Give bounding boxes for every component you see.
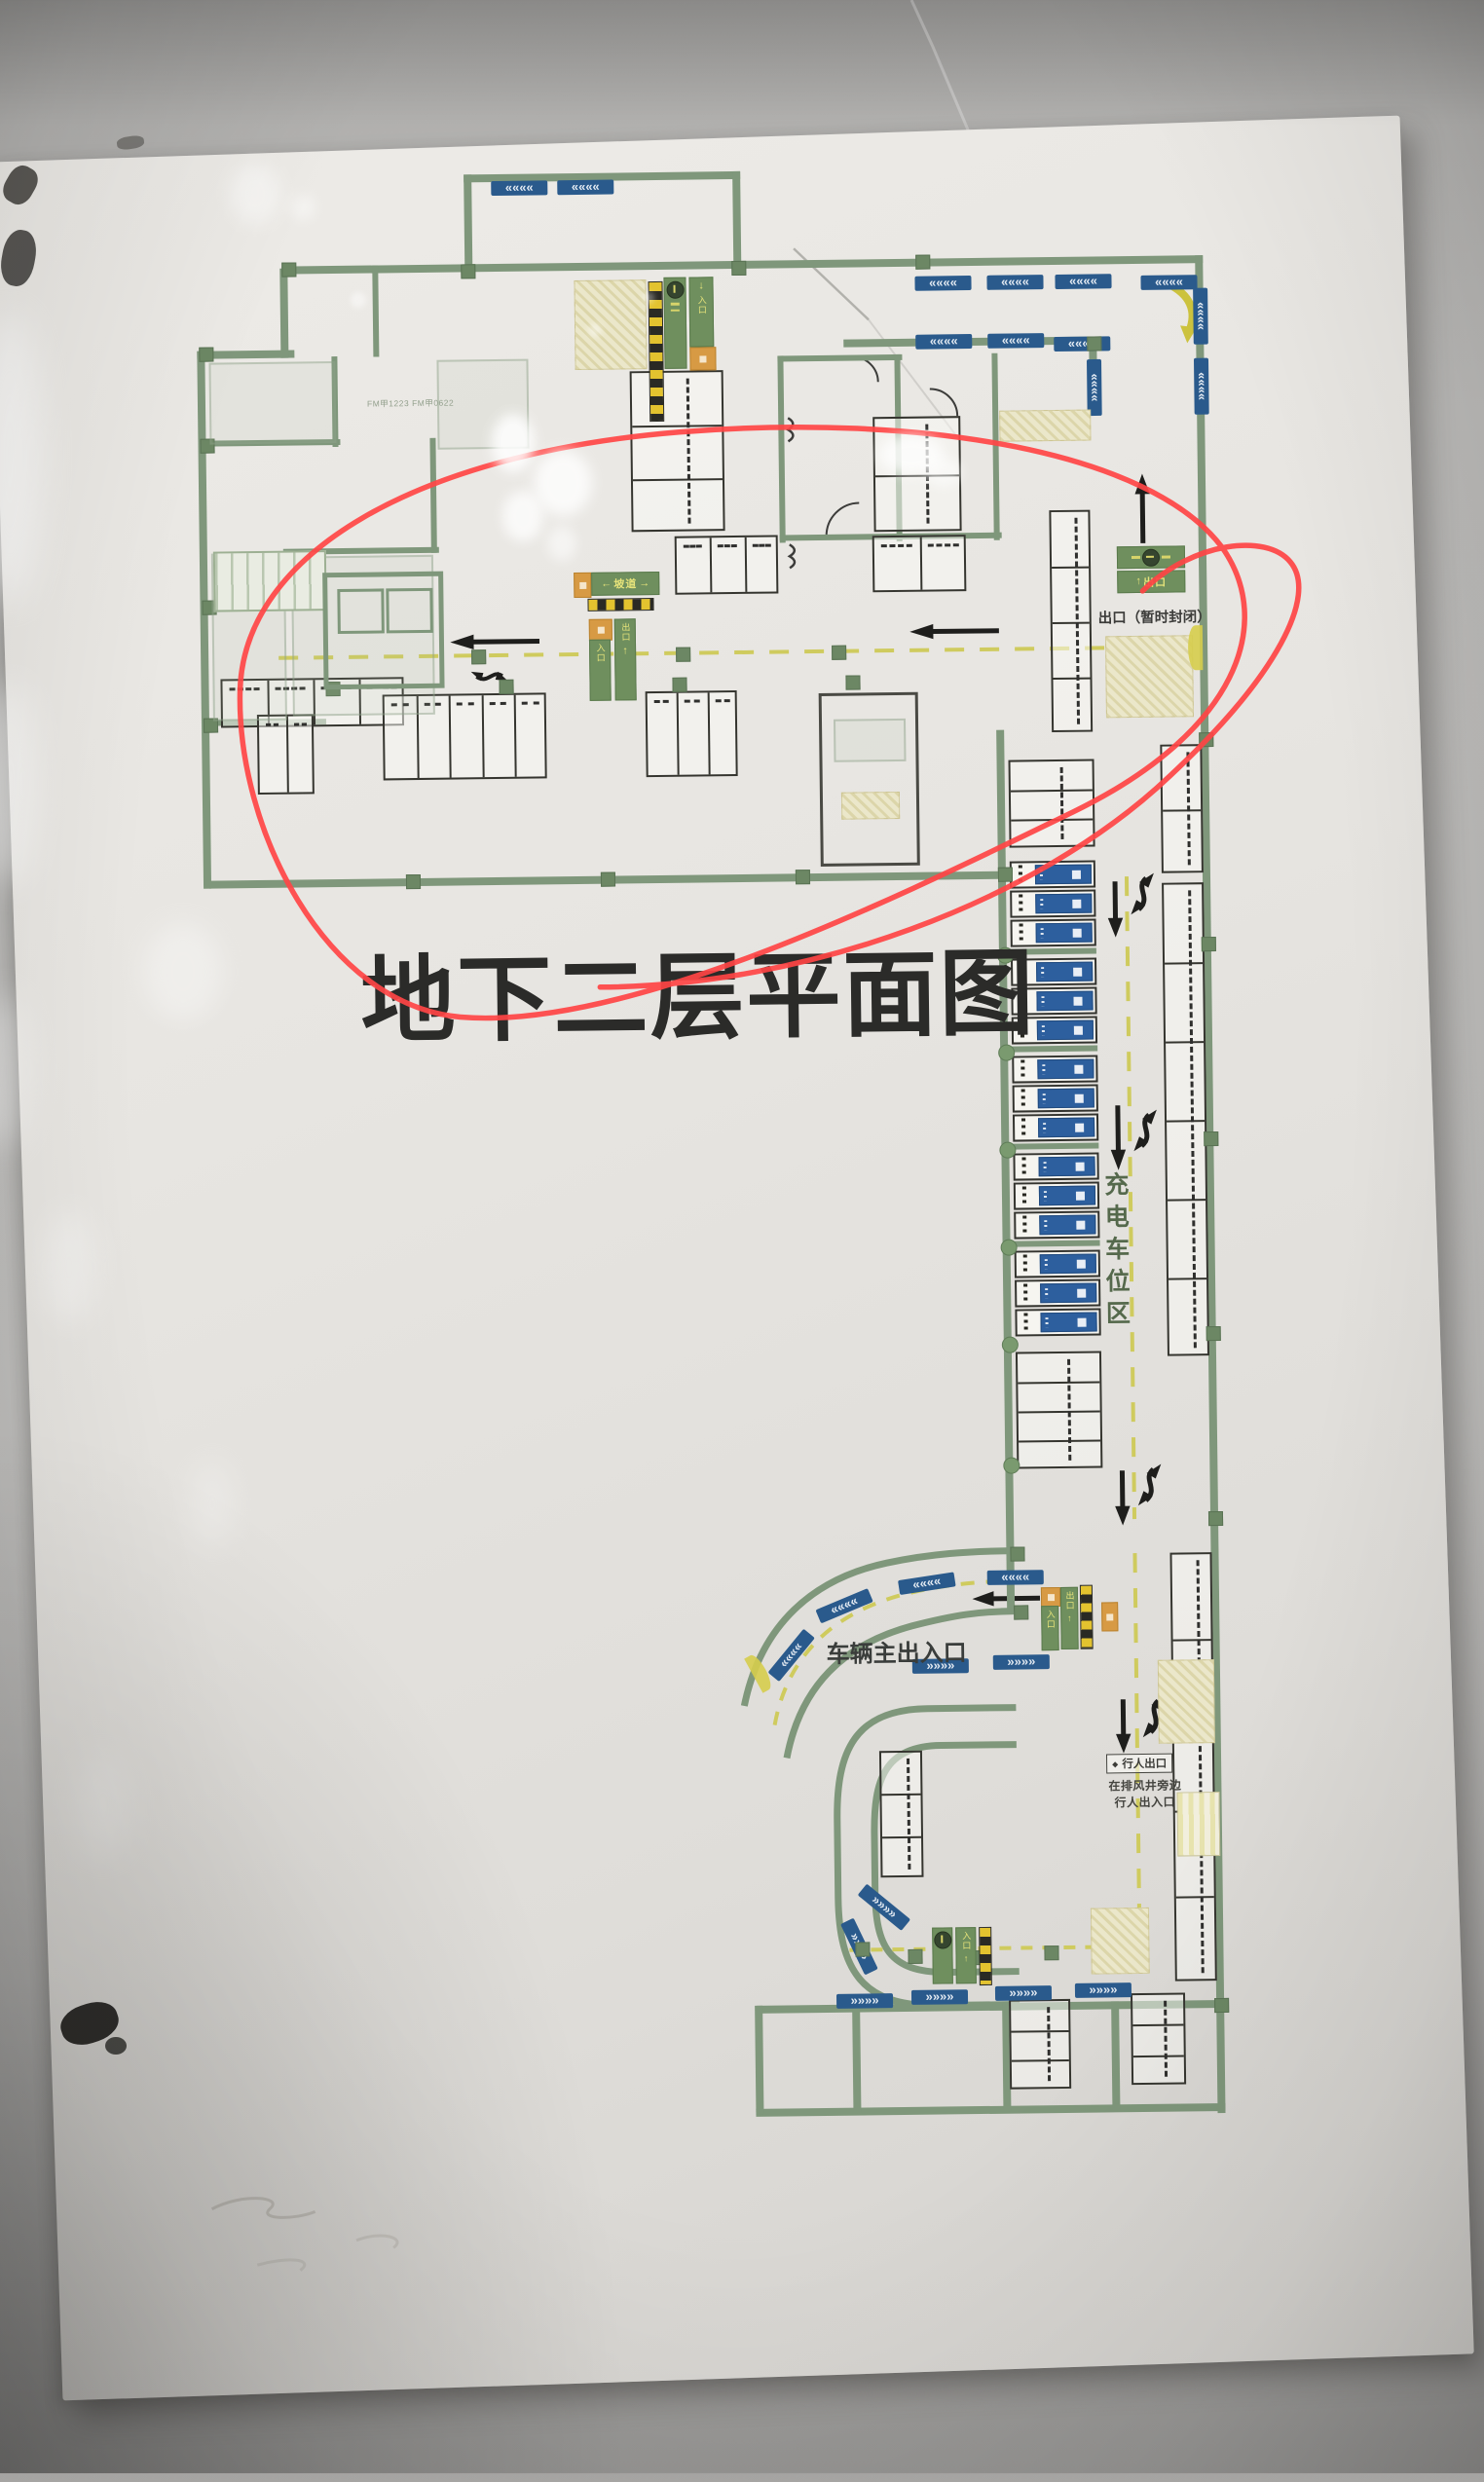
exit-label: 出口 [1064,1591,1073,1611]
direction-chevron-strip: «««« [1140,275,1197,290]
exit-closed-label: 出口（暂时封闭） [1098,606,1211,627]
column-marker-round [1003,1458,1020,1474]
charging-stall-group [1013,1153,1099,1240]
column-marker [1206,1326,1221,1341]
parking-stall-column [1009,1999,1071,2090]
wall-segment [732,171,741,269]
parking-stall-column [1049,510,1093,732]
ramp-direction-sign: ← 坡道 → [591,572,659,596]
ramp-lane-exit: 出口 ↑ [614,618,637,700]
column-marker [998,868,1013,882]
ramp-hazard-stripe [1080,1585,1094,1649]
down-arrow-icon: ↓ [698,280,704,291]
ramp-pad [1158,1659,1215,1744]
wall-segment [777,354,902,362]
ramp-orange-sign [589,619,612,641]
wall-segment [777,355,785,542]
ramp-entrance-sign: ↓ 入口 [688,277,714,347]
direction-chevron-strip: »»»» [911,1989,968,2005]
no-entry-icon [1142,548,1160,566]
column-marker [845,675,860,689]
parking-stall-column [1162,882,1209,1355]
column-marker-round [1001,1240,1018,1256]
no-entry-icon [934,1931,951,1948]
column-marker [915,255,930,270]
bullet-icon: ◆ [1112,1760,1118,1768]
pedestrian-note-line2: 行人出入口 [1114,1794,1175,1811]
direction-chevron-strip: «««« [557,180,613,196]
charging-stall [1013,1085,1098,1113]
parking-stall-column [1160,744,1204,873]
charging-stall [1014,1181,1099,1209]
left-arrow-icon: ← [601,578,612,589]
parking-stall-column [1131,1992,1186,2085]
column-marker [281,263,296,278]
wall-segment [1015,1240,1100,1246]
direction-chevron-strip: »»»» [1075,1982,1132,1998]
ramp-lane-entrance: 入口 [1041,1606,1059,1650]
loop-entrance-sign: 入口 ↑ [955,1927,977,1983]
column-marker [1199,732,1213,747]
direction-chevron-strip: «««« [1194,358,1209,415]
direction-chevron-strip: «««« [1054,336,1110,352]
ramp-orange-sign [1101,1602,1118,1631]
column-marker [1208,1511,1223,1526]
sign-mark [671,309,680,312]
wall-segment [1111,2001,1120,2110]
wall-segment [852,2005,861,2114]
right-arrow-icon: → [639,578,649,589]
equipment-pad [841,792,900,820]
column-marker-round [999,1142,1016,1159]
exit-no-entry-sign [1117,545,1185,569]
wall-segment [279,269,288,358]
charging-stall [1012,1056,1097,1084]
up-arrow-icon: ↑ [622,646,628,656]
wall-segment [1013,1143,1098,1150]
pedestrian-note-line1: 在排风井旁边 [1108,1777,1181,1795]
sign-mark [671,303,680,306]
parking-stall-column [630,370,725,532]
direction-chevron-strip: »»»» [995,1985,1052,2001]
pedestrian-stairs [1176,1792,1220,1857]
column-marker [672,678,686,692]
direction-chevron-strip: «««« [987,1570,1044,1585]
sign-mark [1162,556,1170,559]
column-marker [1014,1605,1028,1619]
entrance-label: 入口 [697,295,706,315]
room-outline [208,361,336,445]
elevator-cab [337,588,385,634]
column-marker [199,348,213,362]
column-marker [908,1949,922,1964]
direction-chevron-strip: »»»» [993,1654,1050,1670]
direction-chevron-strip: «««« [1087,359,1102,416]
parking-stall-row [675,535,779,594]
up-arrow-icon: ↑ [1135,576,1141,587]
wall-light [1188,625,1204,670]
column-marker [1010,1546,1024,1561]
column-marker [461,264,475,278]
parking-stall-column [1016,1351,1102,1468]
ramp-label: 坡道 [613,575,637,591]
wall-segment [429,438,436,553]
ramp-lane-exit: 出口 ↑ [1060,1587,1079,1649]
shelf-pad [999,410,1091,442]
charging-stall [1014,1210,1099,1239]
up-arrow-icon: ↑ [964,1954,969,1963]
ramp-no-entry-sign [663,278,686,369]
column-marker [601,872,615,887]
column-marker [1202,937,1216,951]
column-marker [471,649,486,664]
column-marker [1204,1131,1218,1146]
column-marker [406,874,421,889]
direction-chevron-strip: «««« [987,333,1044,349]
direction-chevron-strip: »»»» [836,1993,893,2009]
entrance-label: 入口 [961,1931,970,1950]
direction-chevron-strip: «««« [915,334,972,350]
exit-direction-sign: ↑ 出口 [1117,570,1185,593]
equipment-room [819,692,920,867]
charging-stall [1015,1308,1100,1336]
direction-chevron-strip: «««« [491,180,547,196]
parking-stall-column [1169,1552,1216,1981]
elevator-cab [386,588,433,634]
charging-stall [1015,1249,1100,1278]
parking-stall-row [257,714,315,795]
direction-chevron-strip: «««« [768,1629,815,1682]
wall-segment [991,353,999,540]
entrance-label: 入口 [596,644,605,663]
column-marker [832,646,846,660]
exit-label: 出口 [620,622,629,642]
column-marker [499,680,513,694]
ramp-orange-sign [689,347,716,370]
stairs [213,550,327,611]
ramp-orange-sign [1041,1587,1060,1607]
elevator-core [322,572,444,690]
parking-stall-row [872,535,967,592]
plan-title: 地下二层平面图 [360,915,1037,1060]
equipment-outline [834,719,907,762]
ramp-orange-sign [574,573,591,598]
parking-stall-column [879,1751,924,1878]
ramp-hazard-stripe [979,1927,992,1985]
ramp-hazard-stripe [587,598,653,611]
wall-segment [756,2103,1225,2117]
column-marker [796,870,810,884]
pedestrian-exit-label: 行人出口 [1122,1756,1167,1772]
column-marker [1044,1945,1058,1960]
charging-zone-label: 充电车位区 [1097,1171,1134,1332]
column-marker [1087,336,1101,351]
column-marker [855,1942,870,1956]
no-entry-icon [666,281,684,299]
vehicle-entrance-label: 车辆主出入口 [826,1633,966,1669]
charging-stall-group [1015,1249,1101,1336]
floor-plan: ««««««««««««««««««««««««««««««««««««««««… [0,0,1484,2482]
parking-stall-column [872,416,961,532]
ramp-pad [574,279,647,370]
direction-chevron-strip: «««« [1193,288,1208,345]
column-marker [731,261,746,276]
charging-stall [1015,1278,1100,1307]
entrance-label: 入口 [1046,1610,1055,1629]
corner-fold-mark [105,2037,127,2055]
loop-no-entry-sign [932,1927,953,1983]
parking-stall-column [1009,759,1095,848]
direction-chevron-strip: «««« [914,276,971,291]
up-arrow-icon: ↑ [1067,1614,1072,1623]
wall-segment [755,2006,763,2115]
column-marker [676,648,690,662]
ramp-hazard-stripe [648,281,664,422]
pedestrian-exit-box: ◆ 行人出口 [1106,1754,1172,1774]
direction-chevron-strip: «««« [815,1588,872,1623]
sign-mark [1132,556,1140,559]
direction-chevron-strip: »»»» [858,1884,910,1931]
column-marker [1214,1998,1229,2013]
wall-segment [372,265,379,356]
exit-pad [1105,635,1194,718]
parking-stall-row [646,690,738,777]
ramp-lane-entrance: 入口 [589,640,612,701]
exit-label: 出口 [1143,574,1167,589]
charging-stall-group [1012,1056,1098,1142]
column-marker-round [1002,1337,1019,1353]
wall-segment [464,174,472,272]
charging-stall [1010,890,1095,918]
charging-stall [1010,861,1095,889]
loop-pad [1091,1908,1150,1975]
direction-chevron-strip: «««« [898,1572,956,1595]
direction-chevron-strip: «««« [1055,274,1111,289]
charging-stall [1013,1114,1098,1142]
direction-chevron-strip: «««« [986,275,1043,290]
room-code-annotation: FM甲1223 FM甲0622 [367,397,454,410]
charging-stall [1013,1153,1098,1181]
